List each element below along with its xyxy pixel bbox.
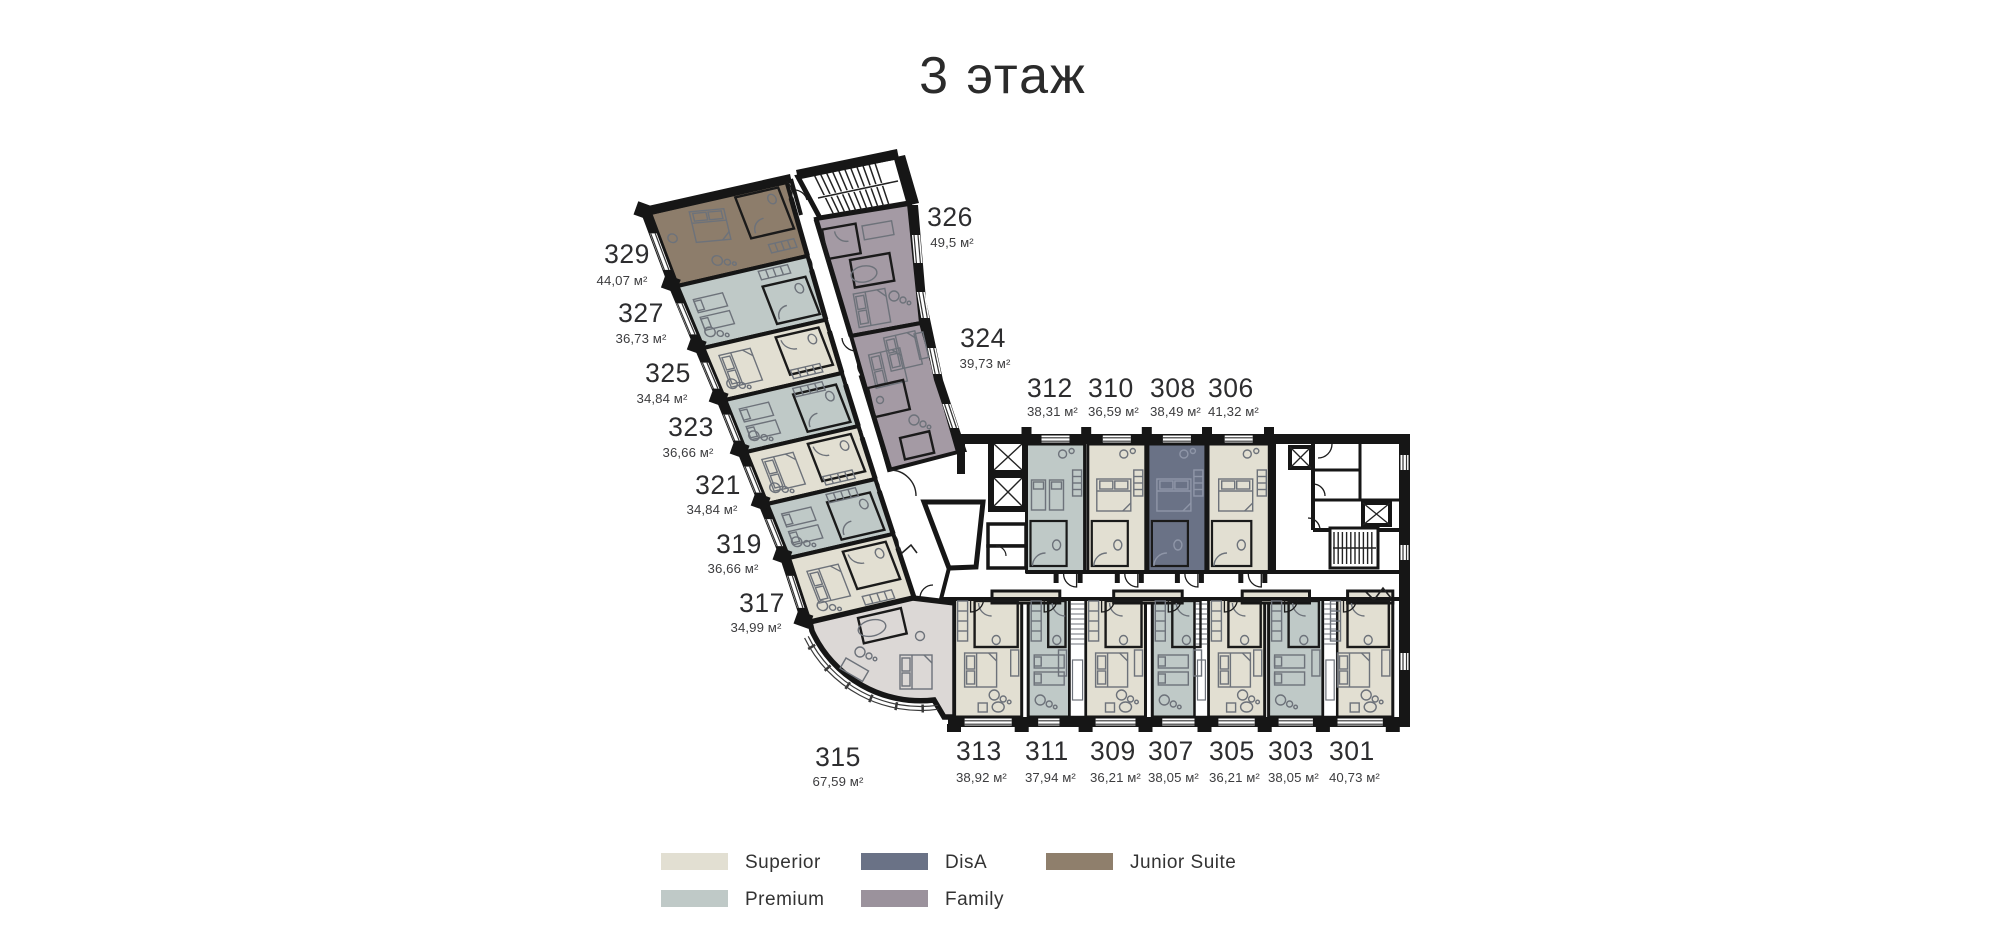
svg-text:36,21 м²: 36,21 м² [1090, 770, 1141, 785]
svg-text:301: 301 [1329, 736, 1375, 766]
svg-text:306: 306 [1208, 373, 1254, 403]
svg-text:321: 321 [695, 470, 741, 500]
svg-text:Superior: Superior [745, 852, 821, 873]
svg-text:DisA: DisA [945, 852, 987, 873]
svg-text:317: 317 [739, 588, 785, 618]
svg-text:323: 323 [668, 412, 714, 442]
svg-text:305: 305 [1209, 736, 1255, 766]
svg-text:34,84 м²: 34,84 м² [687, 502, 738, 517]
svg-text:34,99 м²: 34,99 м² [731, 620, 782, 635]
svg-text:67,59 м²: 67,59 м² [813, 774, 864, 789]
svg-text:Junior Suite: Junior Suite [1130, 852, 1236, 873]
svg-text:Premium: Premium [745, 889, 825, 910]
svg-text:313: 313 [956, 736, 1002, 766]
svg-text:307: 307 [1148, 736, 1194, 766]
svg-text:3 этаж: 3 этаж [919, 47, 1087, 105]
svg-text:36,73 м²: 36,73 м² [616, 331, 667, 346]
svg-text:38,05 м²: 38,05 м² [1148, 770, 1199, 785]
svg-text:319: 319 [716, 529, 762, 559]
svg-text:38,92 м²: 38,92 м² [956, 770, 1007, 785]
svg-text:315: 315 [815, 742, 861, 772]
svg-text:37,94 м²: 37,94 м² [1025, 770, 1076, 785]
svg-text:44,07 м²: 44,07 м² [597, 273, 648, 288]
svg-text:39,73 м²: 39,73 м² [960, 356, 1011, 371]
svg-text:49,5 м²: 49,5 м² [930, 235, 974, 250]
svg-text:38,31 м²: 38,31 м² [1027, 404, 1078, 419]
svg-text:326: 326 [927, 202, 973, 232]
svg-text:36,21 м²: 36,21 м² [1209, 770, 1260, 785]
svg-text:36,59 м²: 36,59 м² [1088, 404, 1139, 419]
svg-text:310: 310 [1088, 373, 1134, 403]
svg-text:324: 324 [960, 323, 1006, 353]
svg-text:Family: Family [945, 889, 1004, 910]
svg-text:40,73 м²: 40,73 м² [1329, 770, 1380, 785]
svg-text:327: 327 [618, 298, 664, 328]
svg-text:34,84 м²: 34,84 м² [637, 391, 688, 406]
svg-text:309: 309 [1090, 736, 1136, 766]
svg-text:325: 325 [645, 358, 691, 388]
svg-text:36,66 м²: 36,66 м² [663, 445, 714, 460]
svg-text:308: 308 [1150, 373, 1196, 403]
svg-text:312: 312 [1027, 373, 1073, 403]
svg-text:36,66 м²: 36,66 м² [708, 561, 759, 576]
svg-text:329: 329 [604, 239, 650, 269]
svg-text:41,32 м²: 41,32 м² [1208, 404, 1259, 419]
svg-text:38,49 м²: 38,49 м² [1150, 404, 1201, 419]
svg-text:303: 303 [1268, 736, 1314, 766]
svg-text:38,05 м²: 38,05 м² [1268, 770, 1319, 785]
svg-text:311: 311 [1025, 736, 1069, 766]
